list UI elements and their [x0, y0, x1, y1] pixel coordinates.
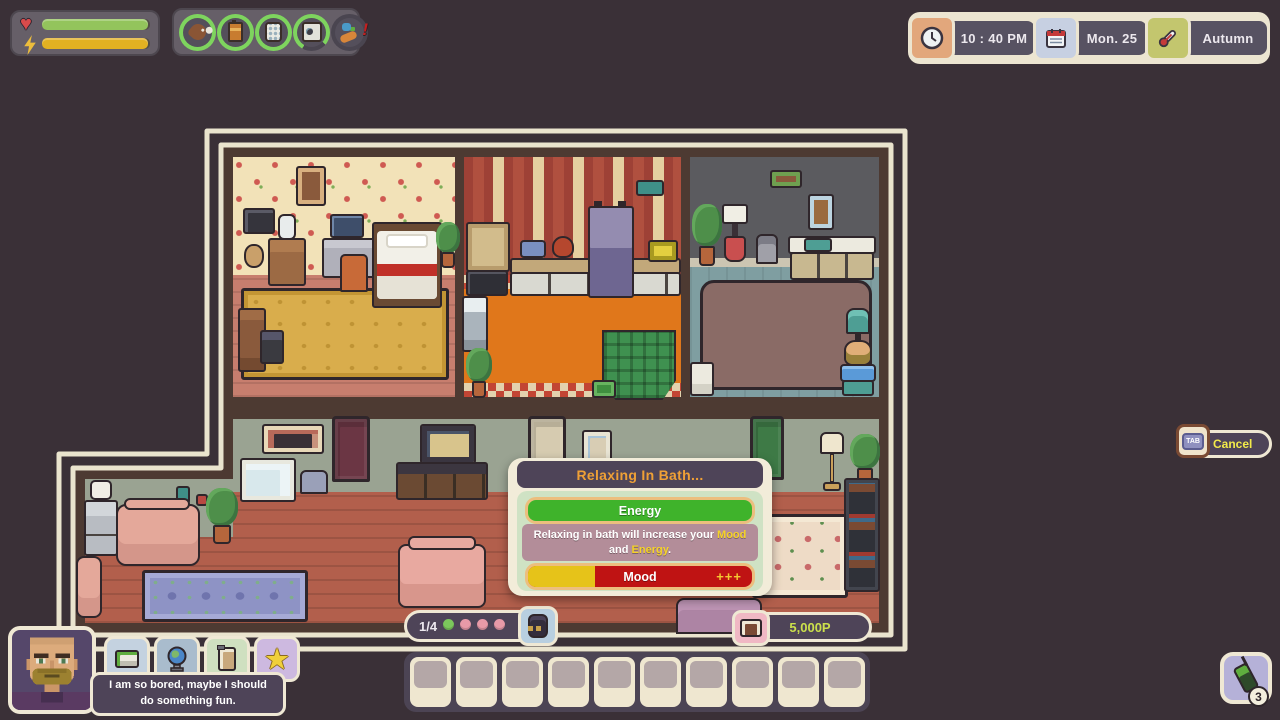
teddy-bear[interactable]: [244, 244, 264, 268]
pager-dot-inactive: [460, 619, 471, 630]
hotbar: [404, 652, 870, 712]
extension-sofa[interactable]: [116, 504, 200, 566]
tv-cabinet[interactable]: [396, 462, 488, 500]
vitals-panel: ♥: [10, 10, 160, 56]
hotbar-slot-7[interactable]: [686, 657, 727, 707]
pager-dots: [437, 617, 505, 635]
cancel-label: Cancel: [1213, 437, 1252, 451]
mood-bonus: +++: [716, 566, 742, 587]
kitchen-plant[interactable]: [466, 348, 492, 398]
need-hunger: [179, 14, 216, 51]
bathroom-sink-counter[interactable]: [788, 236, 876, 282]
game-screen: ♥ ! 10 : 40 PM Mon. 25 Autumn Relaxing I…: [0, 0, 1280, 720]
hotbar-slot-10[interactable]: [824, 657, 865, 707]
tab-key-icon: TAB: [1176, 424, 1210, 458]
star-icon: ★: [265, 646, 288, 672]
season-display: Autumn: [1189, 21, 1267, 55]
hotbar-slot-3[interactable]: [502, 657, 543, 707]
extension-plant[interactable]: [206, 488, 238, 544]
bathroom-plant[interactable]: [692, 204, 722, 266]
need-social: !: [331, 14, 368, 51]
money-amount: 5,000P: [789, 620, 830, 635]
action-description: Relaxing in bath will increase your Mood…: [522, 524, 758, 561]
alert-exclamation-icon: !: [362, 20, 368, 40]
stool[interactable]: [300, 470, 328, 494]
need-bladder: [293, 14, 330, 51]
extension-armchair[interactable]: [76, 556, 102, 618]
date-display: Mon. 25: [1077, 21, 1147, 55]
desk-chair[interactable]: [340, 254, 368, 292]
door-maroon[interactable]: [332, 416, 370, 482]
tv[interactable]: [420, 424, 476, 464]
drumstick-icon: [186, 21, 209, 44]
kitchen-pot[interactable]: [520, 240, 546, 258]
action-popup-body: Energy Relaxing in bath will increase yo…: [517, 491, 763, 591]
mood-gain-bar: Mood +++: [525, 563, 755, 590]
bedroom-picture[interactable]: [296, 166, 326, 206]
speech-bubble: I am so bored, maybe I should do somethi…: [90, 672, 286, 716]
kitchen-cabinet[interactable]: [466, 222, 510, 272]
action-popup-title: Relaxing In Bath...: [517, 461, 763, 488]
blue-rug: [142, 570, 308, 622]
globe-icon: [165, 646, 189, 672]
display-cabinet[interactable]: [240, 458, 296, 502]
energy-gain-bar: Energy: [525, 497, 755, 524]
bathtub-character[interactable]: [838, 308, 878, 398]
portrait-face: [12, 630, 92, 710]
needs-panel: !: [172, 8, 360, 56]
nightstand[interactable]: [268, 238, 306, 286]
tab-key-label: TAB: [1182, 433, 1204, 450]
energy-bar: [42, 38, 148, 49]
washer-icon: [302, 22, 322, 42]
notification-badge: 3: [1248, 686, 1269, 707]
pink-sofa[interactable]: [398, 544, 486, 608]
bathroom-cabinet[interactable]: [690, 362, 714, 396]
hotbar-slot-6[interactable]: [640, 657, 681, 707]
fridge[interactable]: [588, 206, 634, 298]
health-heart-icon: ♥: [20, 15, 40, 35]
bathroom-picture[interactable]: [770, 170, 802, 188]
bedroom-small-tv[interactable]: [260, 330, 284, 364]
extension-radio[interactable]: [90, 480, 112, 500]
bedroom-wall-tv[interactable]: [243, 208, 275, 234]
hotbar-slot-1[interactable]: [410, 657, 451, 707]
water-cooler[interactable]: [462, 296, 488, 352]
hotbar-slot-4[interactable]: [548, 657, 589, 707]
datetime-bar: 10 : 40 PM Mon. 25 Autumn: [908, 12, 1270, 64]
toilet[interactable]: [722, 204, 748, 264]
health-bar: [42, 19, 148, 30]
social-alert-icon: [341, 23, 359, 41]
action-popup: Relaxing In Bath... Energy Relaxing in b…: [508, 458, 772, 596]
clock-icon: [909, 15, 955, 61]
pager-dot-inactive: [477, 619, 488, 630]
hotbar-slot-5[interactable]: [594, 657, 635, 707]
speech-text: I am so bored, maybe I should do somethi…: [101, 678, 275, 710]
backpack-button[interactable]: [518, 606, 558, 646]
bathroom-mirror[interactable]: [808, 194, 834, 230]
computer-monitor[interactable]: [330, 214, 364, 238]
hotbar-slot-8[interactable]: [732, 657, 773, 707]
energy-lightning-icon: [22, 35, 42, 55]
extension-side-table[interactable]: [84, 500, 118, 556]
thermometer-icon: [1145, 15, 1191, 61]
cat[interactable]: [756, 234, 778, 264]
hotbar-slot-2[interactable]: [456, 657, 497, 707]
soap-icon: [265, 22, 282, 42]
kitchen-sink[interactable]: [648, 240, 678, 262]
bookshelf[interactable]: [844, 478, 880, 592]
calendar-icon: [1033, 15, 1079, 61]
bed[interactable]: [372, 222, 442, 308]
battery-icon: [228, 22, 243, 42]
pager-dot-inactive: [494, 619, 505, 630]
kitchen-stove[interactable]: [466, 270, 508, 296]
kitchen-picture[interactable]: [636, 180, 664, 196]
hotbar-slot-9[interactable]: [778, 657, 819, 707]
floor-lamp[interactable]: [818, 432, 846, 492]
need-energy: [217, 14, 254, 51]
kitchen-mat: [592, 380, 616, 398]
energy-gain-label: Energy: [528, 500, 752, 521]
wallet-icon: [740, 619, 762, 637]
need-hygiene: [255, 14, 292, 51]
notification-count: 3: [1255, 690, 1262, 704]
vanity-mirror[interactable]: [278, 214, 296, 240]
bedroom-plant[interactable]: [436, 222, 460, 268]
livingroom-art[interactable]: [262, 424, 324, 454]
wallet-button[interactable]: [732, 610, 770, 646]
time-display: 10 : 40 PM: [953, 21, 1035, 55]
kitchen-kettle[interactable]: [552, 236, 574, 258]
pager-label: 1/4: [419, 619, 437, 634]
pager-dot-active: [443, 619, 454, 630]
character-portrait[interactable]: [8, 626, 96, 714]
